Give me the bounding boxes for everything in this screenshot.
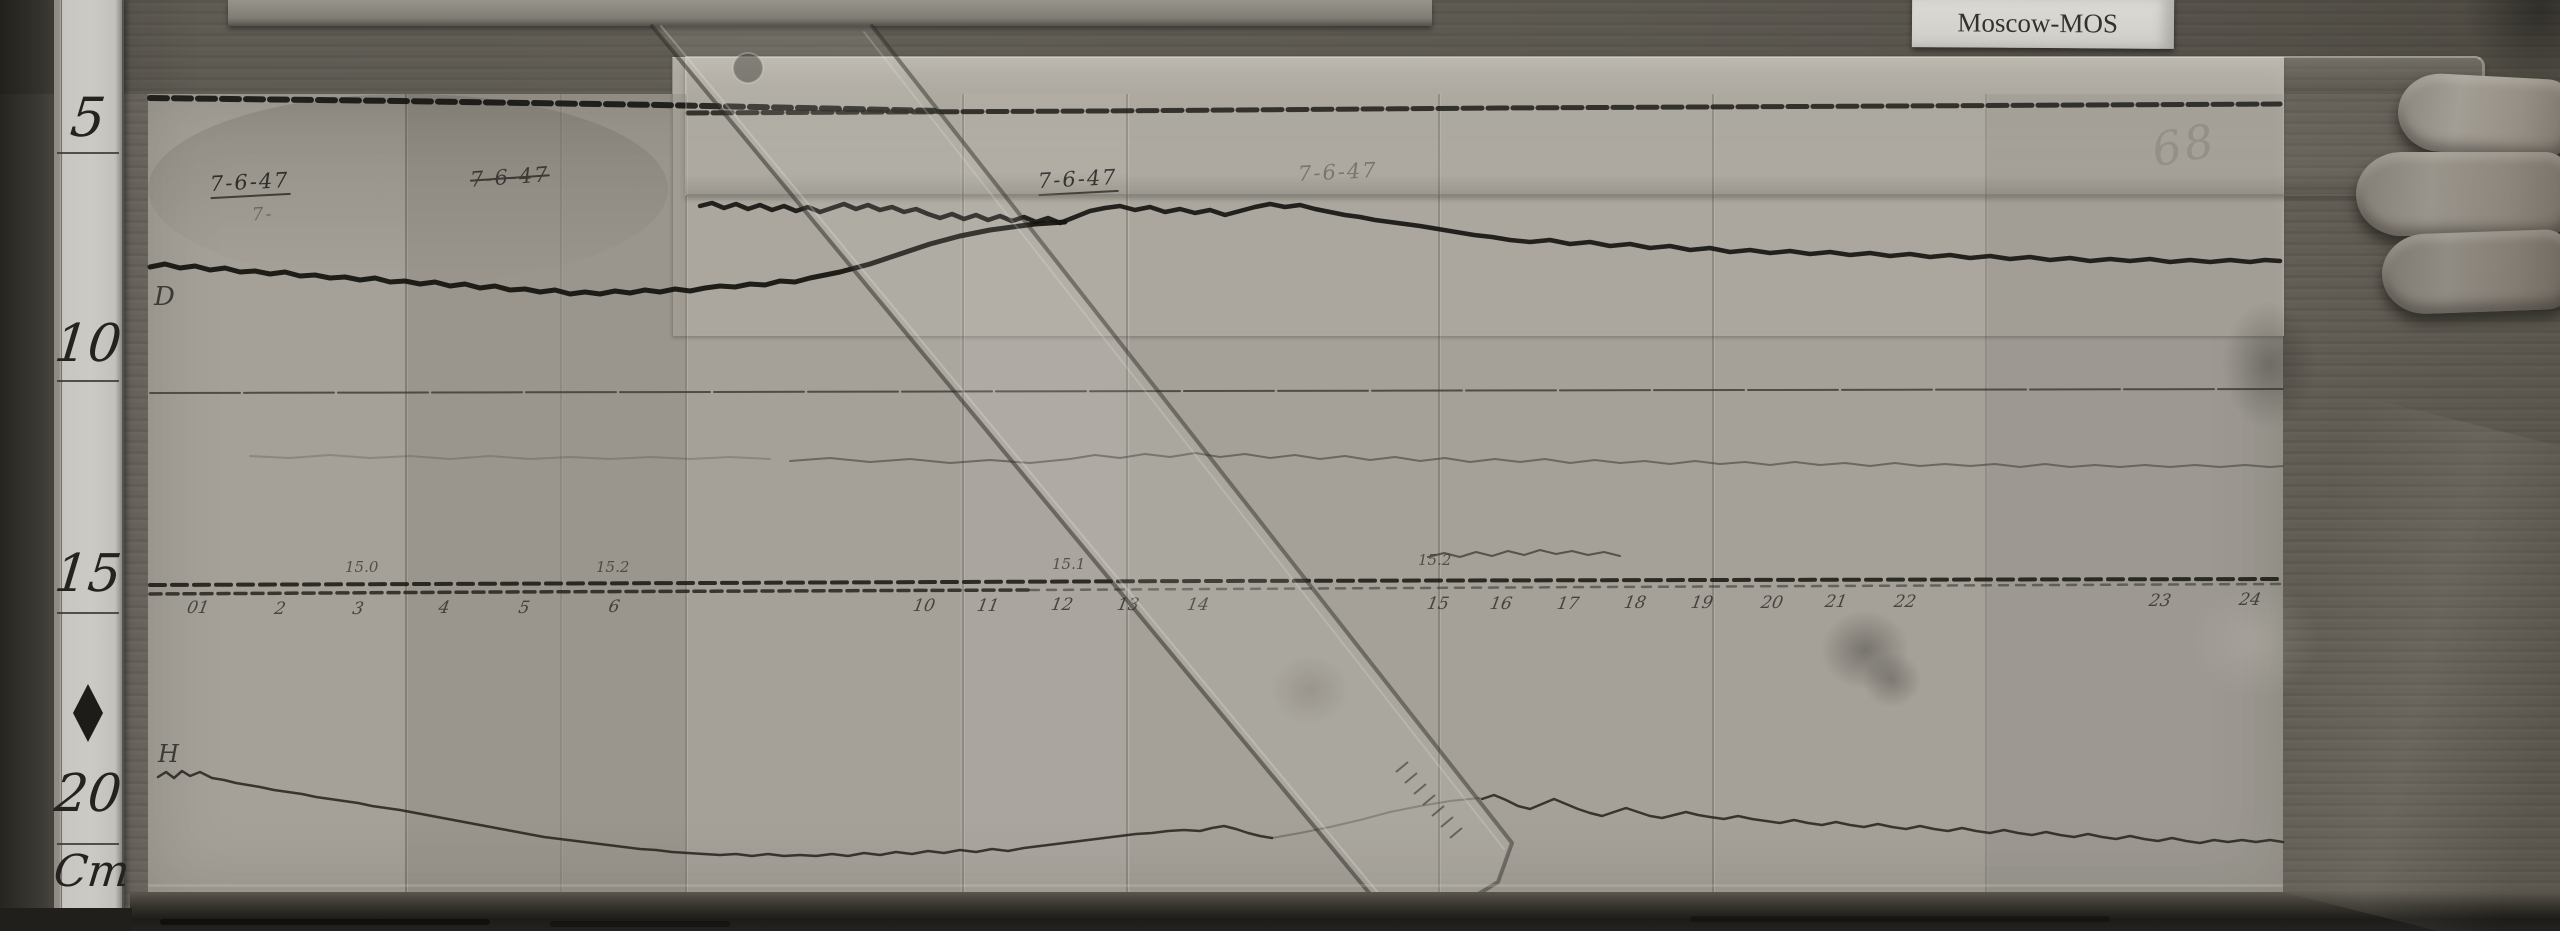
baseline-scale-value: 15.2 [1418,551,1451,569]
paper-seam [685,94,687,894]
paper-seam [1438,94,1440,894]
cm-mark-5: 5 [51,86,126,149]
bottom-edge-mark [1690,916,2110,922]
wood-table-bottom-band [130,892,2560,931]
wood-table-left-edge [0,0,56,931]
cm-division-line [57,612,119,614]
hour-label: 6 [595,597,633,617]
hand-shadow [2462,0,2560,80]
station-label-card: Moscow-MOS [1912,0,2174,49]
bottom-edge-mark [160,919,490,925]
hour-label: 14 [1179,595,1217,615]
cm-division-line [57,843,119,845]
paper-seam [962,94,964,894]
paper-seam [1985,94,1987,894]
wood-bottom-left-corner [0,908,132,931]
transparent-ruler-horizontal [685,56,2485,196]
paper-stain [2222,300,2317,430]
station-label-text: Moscow-MOS [1957,7,2118,38]
hour-label: 4 [425,598,463,618]
hour-label: 15 [1419,594,1457,614]
baseline-scale-value: 15.0 [345,558,378,576]
paper-stain [1270,655,1350,725]
paper-strip-shade [1985,94,2283,894]
cm-unit-label: Cm [51,846,124,897]
hour-label: 13 [1109,595,1147,615]
hour-label: 20 [1753,593,1791,613]
cm-mark-15: 15 [51,544,125,604]
hour-label: 17 [1549,594,1587,614]
hour-label: 11 [969,596,1007,616]
hour-label: 16 [1482,594,1520,614]
cm-mark-20: 20 [51,764,125,824]
magnetogram-photo-scene: Moscow-MOS 5 10 15 20 Cm 7-6-47 7- 7-6-4… [0,0,2560,931]
hour-label: 12 [1043,595,1081,615]
hour-label: 2 [261,599,299,619]
hour-label: 5 [505,598,543,618]
h-trace-label: H [158,740,179,768]
handwritten-date-faint: 7- [251,203,274,225]
diamond-pointer [73,684,103,742]
bottom-edge-mark [550,921,730,927]
hand-finger-top [2396,72,2560,159]
baseline-scale-value: 15.1 [1052,555,1085,573]
paper-strip-highlight [960,94,1130,894]
hour-label: 23 [2141,591,2179,611]
hour-label: 19 [1683,593,1721,613]
paper-bottom-edge [148,884,2283,887]
d-trace-label: D [154,282,175,312]
paper-stain [1862,652,1922,708]
hand-finger-bottom [2381,229,2560,316]
hour-label: 3 [339,599,377,619]
paper-seam [1712,94,1714,894]
cm-division-line [57,152,119,154]
paper-seam [1126,94,1128,894]
hour-label: 10 [905,596,943,616]
hour-label: 22 [1886,592,1924,612]
hour-label: 18 [1616,593,1654,613]
hand-finger-middle [2356,152,2560,236]
wooden-lath-top [228,0,1432,26]
hour-label: 01 [179,598,217,618]
hour-label: 21 [1817,592,1855,612]
baseline-scale-value: 15.2 [596,558,629,576]
cm-scale-strip: 5 10 15 20 Cm [54,0,124,913]
handwritten-date: 7-6-47 [209,168,290,199]
hour-label: 24 [2231,590,2269,610]
cm-division-line [57,380,119,382]
cm-mark-10: 10 [51,314,125,374]
